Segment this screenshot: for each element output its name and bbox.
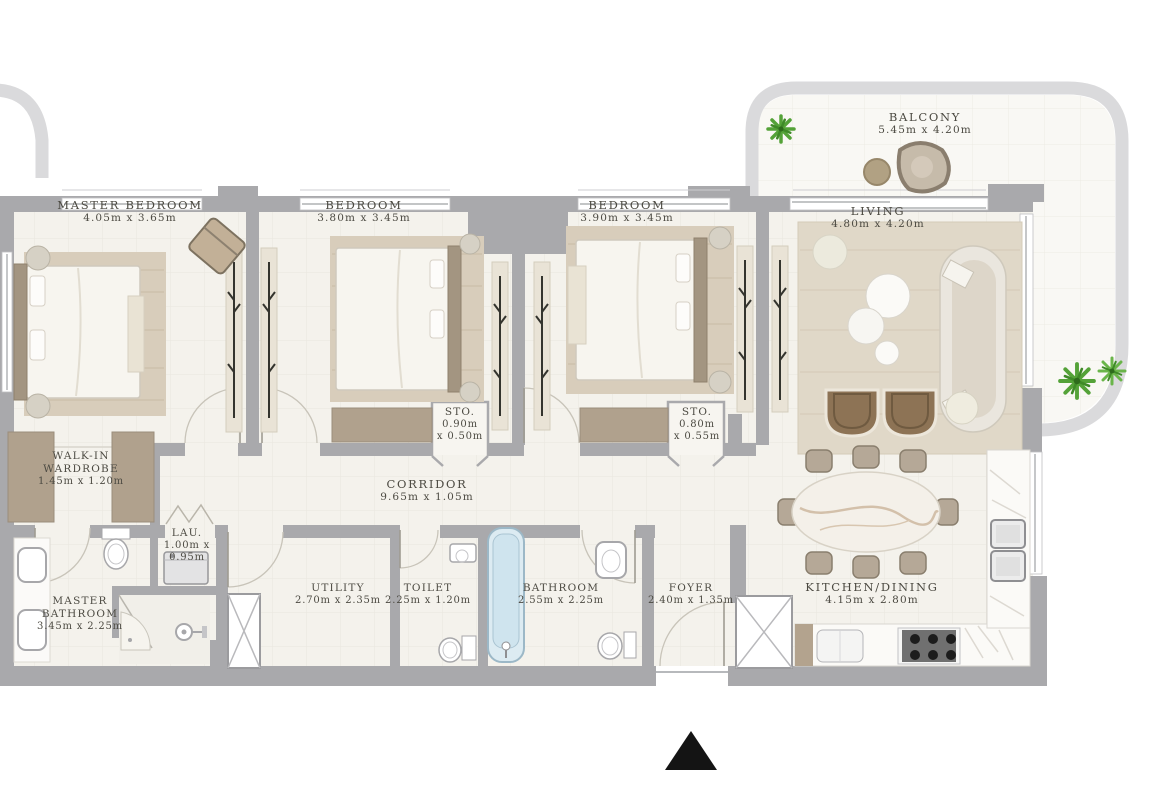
room-label-storage-2: STO. 0.80m x 0.55m <box>674 406 720 444</box>
room-label-bedroom-3: BEDROOM 3.90m x 3.45m <box>580 198 674 225</box>
room-label-walk-in-wardrobe: WALK-IN WARDROBE 1.45m x 1.20m <box>31 450 131 488</box>
room-label-master-bedroom: MASTER BEDROOM 4.05m x 3.65m <box>57 198 203 225</box>
room-label-corridor: CORRIDOR 9.65m x 1.05m <box>380 477 474 504</box>
bedside-table <box>128 296 144 372</box>
room-label-living: LIVING 4.80m x 4.20m <box>831 204 925 231</box>
pouf <box>813 235 847 269</box>
room-label-utility: UTILITY 2.70m x 2.35m <box>295 582 381 607</box>
plant-icon <box>1060 364 1094 398</box>
sink-icon <box>18 548 46 582</box>
room-label-laundry: LAU. 1.00m x 0.95m <box>164 527 210 565</box>
coffee-table <box>875 341 899 365</box>
entrance-opening <box>656 666 728 686</box>
toilet-icon <box>102 528 130 569</box>
bedside-table <box>568 266 586 344</box>
coffee-table <box>848 308 884 344</box>
room-label-toilet: TOILET 2.25m x 1.20m <box>385 582 471 607</box>
bed-2 <box>330 234 484 402</box>
room-label-master-bathroom: MASTER BATHROOM 3.45m x 2.25m <box>25 595 135 633</box>
sink-icon <box>450 544 476 562</box>
floor-plan-drawing <box>0 0 1170 785</box>
sink-icon <box>991 520 1025 581</box>
room-label-bathroom: BATHROOM 2.55m x 2.25m <box>518 582 604 607</box>
kitchen-panel <box>795 624 813 666</box>
bed-3 <box>566 226 734 394</box>
stove-icon <box>898 628 960 664</box>
pouf <box>864 159 890 185</box>
room-label-storage-1: STO. 0.90m x 0.50m <box>437 406 483 444</box>
sink-icon <box>596 542 626 578</box>
toilet-icon <box>598 632 636 659</box>
floor-plan: MASTER BEDROOM 4.05m x 3.65m BEDROOM 3.8… <box>0 0 1170 785</box>
room-label-foyer: FOYER 2.40m x 1.35m <box>648 582 734 607</box>
room-label-kitchen-dining: KITCHEN/DINING 4.15m x 2.80m <box>805 580 938 607</box>
living-furniture <box>798 222 1022 454</box>
north-arrow-icon <box>665 731 717 770</box>
room-label-bedroom-2: BEDROOM 3.80m x 3.45m <box>317 198 411 225</box>
plant-icon <box>768 116 794 142</box>
room-label-balcony: BALCONY 5.45m x 4.20m <box>878 110 972 137</box>
plant-icon <box>1099 358 1125 384</box>
pouf <box>946 392 978 424</box>
